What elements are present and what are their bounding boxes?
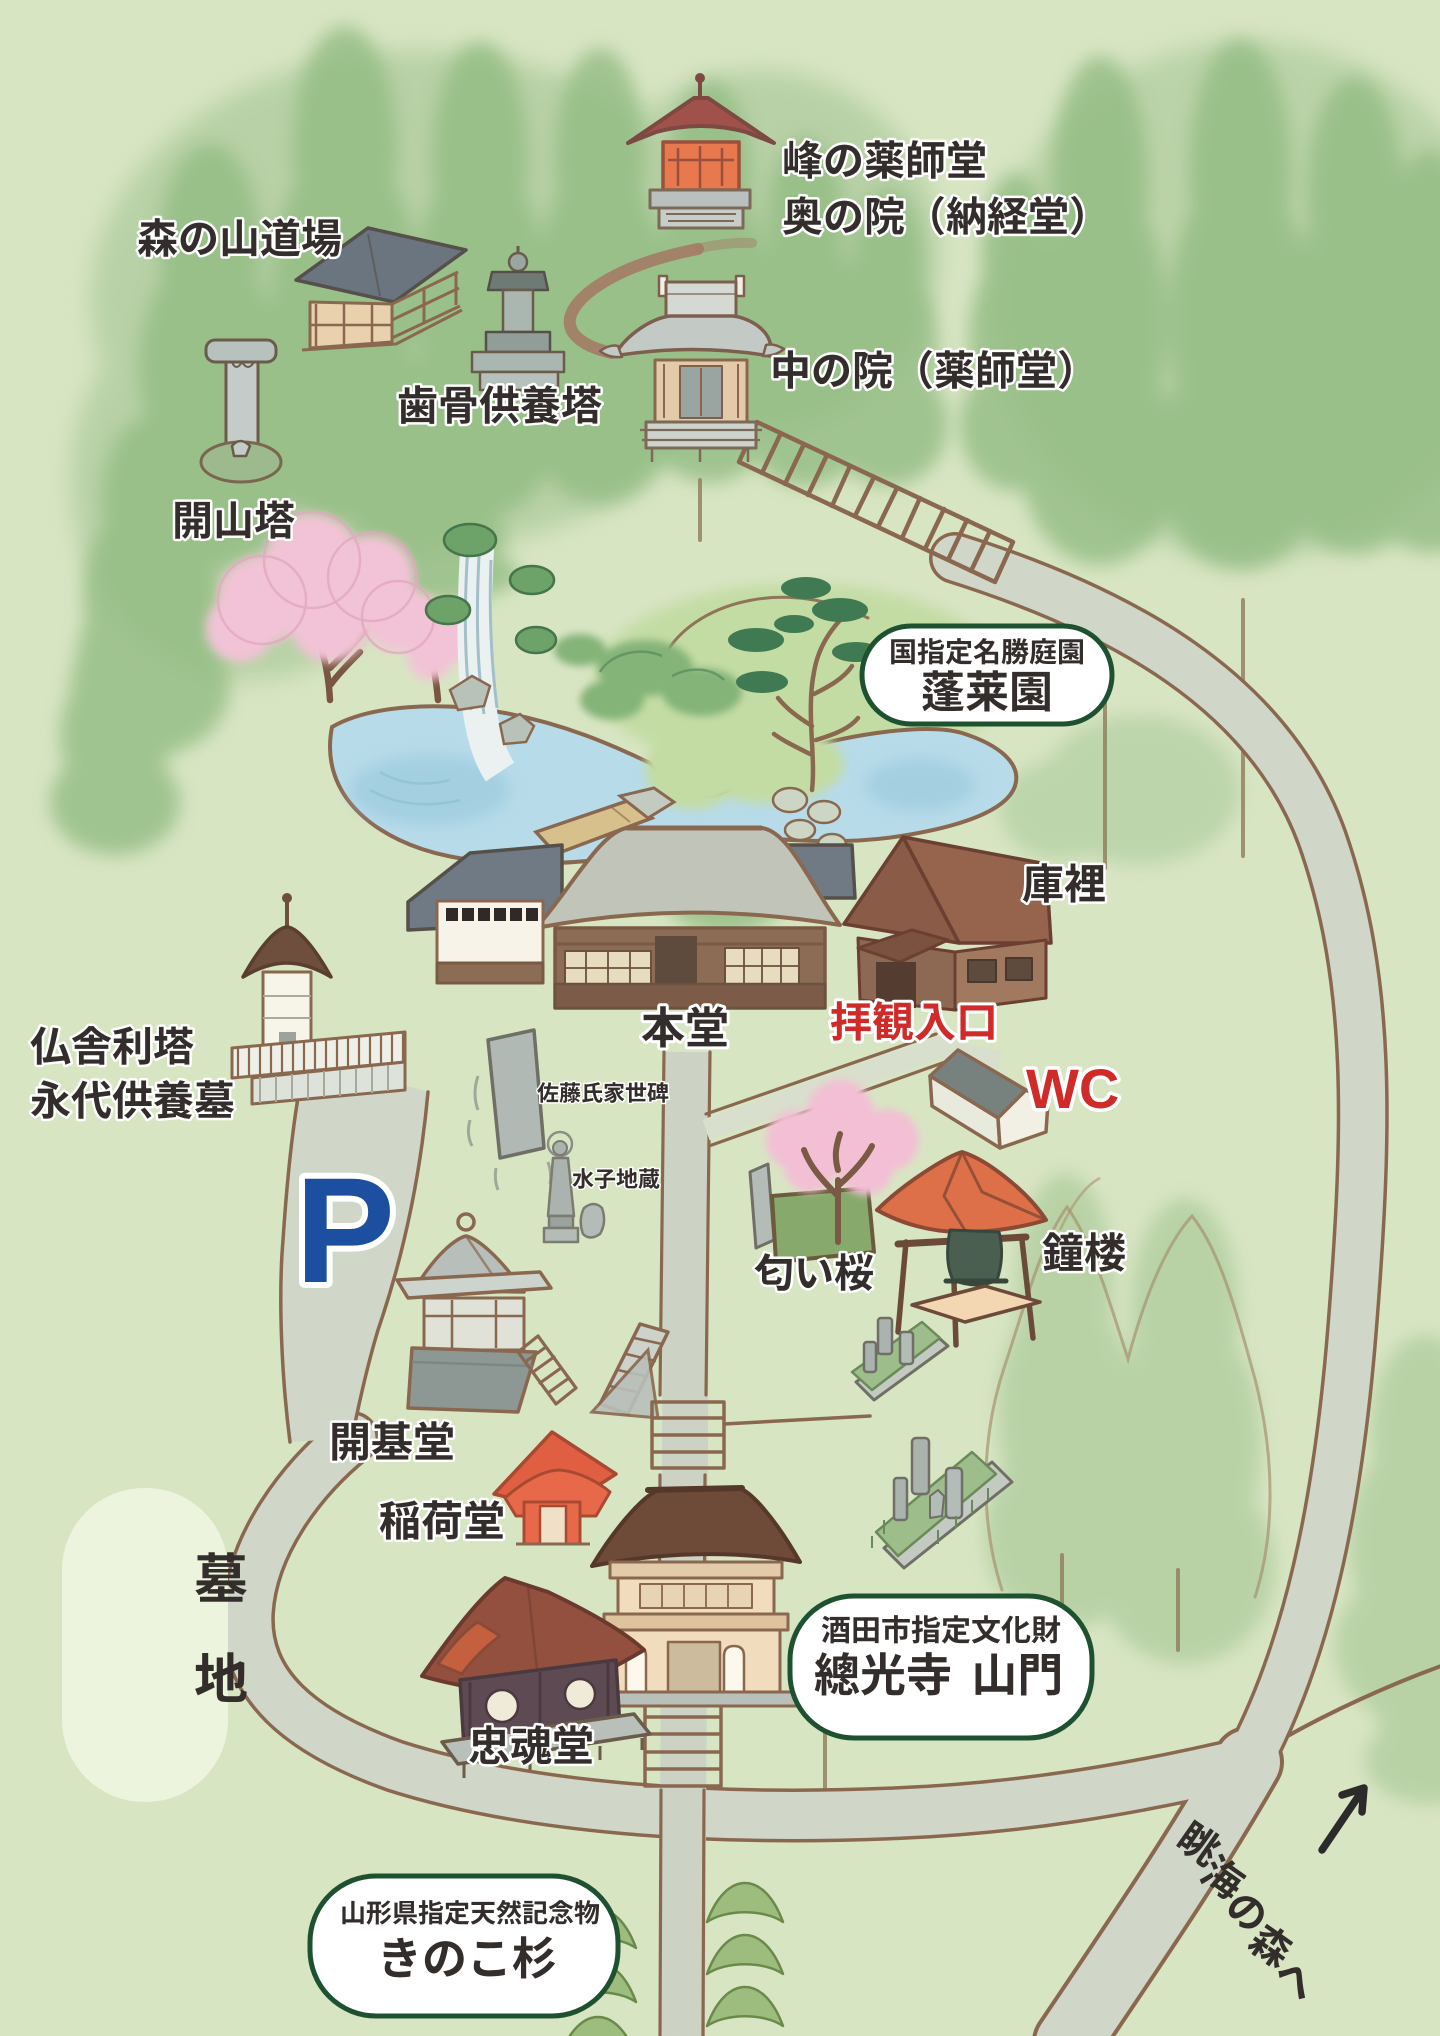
svg-text:WC: WC	[1026, 1057, 1119, 1120]
svg-text:P: P	[295, 1146, 395, 1314]
